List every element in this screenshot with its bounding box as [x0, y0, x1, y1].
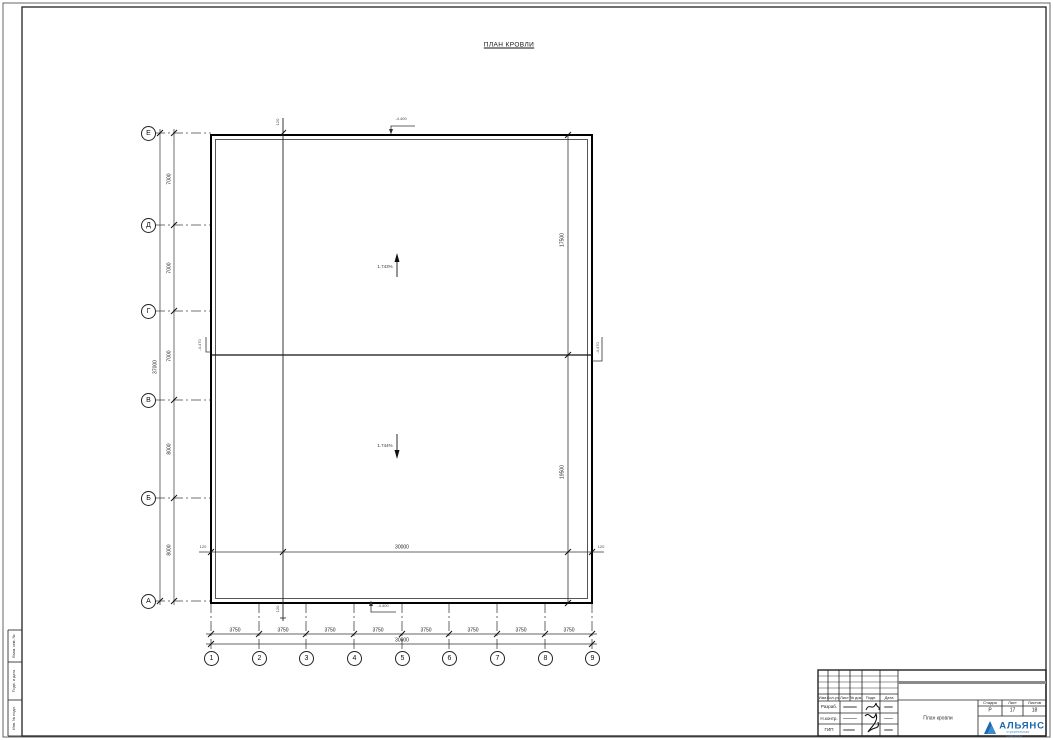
roof-parapet-line [216, 140, 588, 599]
dimension-label: 8000 [168, 443, 173, 454]
roof-outline [211, 135, 592, 603]
sign-role: Разраб. [821, 705, 837, 710]
signature-scribble [865, 703, 879, 732]
col-axis-bubble-3: 3 [299, 651, 314, 666]
row-axis-bubble-d: Д [141, 218, 156, 233]
sign-role: ГИП [825, 728, 834, 733]
dimension-label: 17500 [561, 233, 566, 247]
elev-leader-top [389, 126, 415, 135]
col-axis-bubble-5: 5 [395, 651, 410, 666]
margin-box-label: Инв. № подл. [13, 706, 17, 730]
dimension-label: 3750 [277, 629, 288, 634]
illegible-date [884, 729, 893, 731]
row-axis-bubble-b: Б [141, 491, 156, 506]
row-axis-bubble-e: Е [141, 126, 156, 141]
illegible-date [884, 706, 893, 708]
illegible-name [843, 718, 857, 720]
doc-title: План кровли [923, 717, 952, 722]
col-axis-bubble-6: 6 [442, 651, 457, 666]
slope-label-lower: 1.744% [377, 444, 392, 449]
rev-header: № док. [850, 696, 863, 700]
dimension-label: 3750 [420, 629, 431, 634]
dimension-label: 19500 [561, 465, 566, 479]
rev-header: Кол.уч. [827, 696, 840, 700]
illegible-name [843, 706, 857, 708]
col-axis-bubble-7: 7 [490, 651, 505, 666]
row-axis-bubble-a: А [141, 594, 156, 609]
stage-header: Стадия [983, 701, 997, 705]
rev-header: Подп. [866, 696, 877, 700]
company-subtitle: строительная компания [1007, 730, 1038, 738]
dimension-label: 7000 [168, 262, 173, 273]
drawing-title: ПЛАН КРОВЛИ [484, 42, 534, 49]
sheets-header: Листов [1028, 701, 1041, 705]
slope-label-upper: 1.743% [377, 265, 392, 270]
row-axis-lines [155, 133, 211, 601]
rev-header: Дата [885, 696, 894, 700]
dimension-label: 3750 [515, 629, 526, 634]
row-axis-bubble-g: Г [141, 304, 156, 319]
margin-box-label: Взам. инв. № [13, 634, 17, 658]
stage-value: Р [988, 709, 991, 714]
elevation-label-bottom: -4.400 [377, 604, 388, 608]
dimension-label: 7000 [168, 173, 173, 184]
sheet-header: Лист [1008, 701, 1017, 705]
dimension-label: 30000 [395, 546, 409, 551]
dimension-label: 120 [276, 119, 280, 126]
sign-role: Н.контр. [820, 716, 837, 721]
slope-arrow-up [395, 253, 400, 277]
dimension-label: 8000 [168, 544, 173, 555]
col-axis-bubble-4: 4 [347, 651, 362, 666]
illegible-name [843, 729, 855, 731]
row-axis-bubble-v: В [141, 393, 156, 408]
col-axis-bubble-1: 1 [204, 651, 219, 666]
col-axis-bubble-9: 9 [585, 651, 600, 666]
margin-box-label: Подп. и дата [13, 670, 17, 692]
sheet-value: 17 [1010, 709, 1016, 714]
dimension-label: 120 [276, 606, 280, 613]
elevation-label-ridge-left: -4.470 [198, 339, 202, 350]
dimension-label: 3750 [324, 629, 335, 634]
dimension-total-label: 37000 [154, 360, 159, 374]
dimension-label: 3750 [372, 629, 383, 634]
dimension-label: 7000 [168, 350, 173, 361]
slope-arrow-down [395, 434, 400, 459]
dimension-label: 3750 [563, 629, 574, 634]
dimension-label: 120 [598, 545, 605, 549]
dimension-label: 3750 [467, 629, 478, 634]
dimension-total-label: 30000 [395, 639, 409, 644]
elevation-label-ridge-right: -4.470 [596, 342, 600, 353]
sheets-value: 18 [1032, 709, 1038, 714]
illegible-date [884, 718, 893, 720]
rev-header: Лист [840, 696, 849, 700]
sheet-frame [22, 7, 1046, 736]
dimension-label: 120 [200, 545, 207, 549]
col-axis-bubble-8: 8 [538, 651, 553, 666]
elevation-label-top: -4.400 [395, 117, 406, 121]
left-dim-chain [160, 129, 174, 605]
drawing-sheet: ПЛАН КРОВЛИ Е Д Г В Б А 1 2 3 4 5 6 7 8 … [0, 0, 1053, 740]
col-axis-bubble-2: 2 [252, 651, 267, 666]
dimension-label: 3750 [229, 629, 240, 634]
titleblock-divider [898, 681, 1046, 684]
